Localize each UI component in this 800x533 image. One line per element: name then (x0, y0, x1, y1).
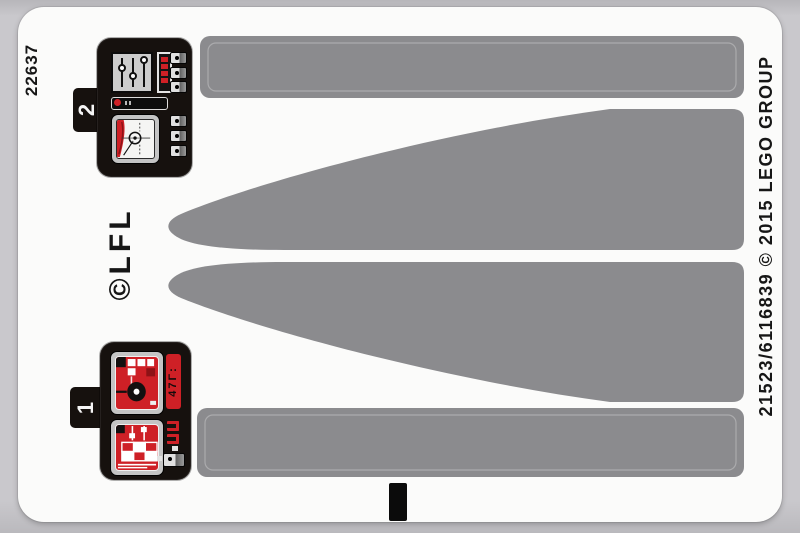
slider-knob (140, 56, 148, 64)
status-screen (115, 424, 159, 471)
sheet-part-number: 22637 (22, 33, 40, 107)
targeting-screen-graphics (116, 357, 158, 409)
sticker-1-tab: 1 (70, 387, 104, 428)
led-segment (161, 71, 168, 77)
led-segment (161, 78, 168, 84)
aurebesh-display: 47Γ: (166, 354, 181, 409)
white-square-mark (157, 456, 162, 461)
radar-screen-graphics (117, 120, 154, 158)
panel-button (170, 52, 187, 64)
slider-track (121, 58, 123, 87)
led-segment (161, 57, 168, 63)
slider-ball (114, 99, 121, 106)
panel-button (170, 81, 187, 93)
sticker-2-number: 2 (76, 98, 98, 122)
panel-button (163, 453, 185, 467)
panel-button (170, 130, 187, 142)
aurebesh-glyphs: 47Γ: (166, 354, 181, 409)
targeting-screen-frame (110, 351, 164, 415)
wedge-sticker-upper (168, 109, 744, 250)
horizontal-slider (111, 97, 168, 110)
wedge-sticker-lower (168, 262, 744, 402)
led-segment (161, 64, 168, 70)
panel-button (170, 67, 187, 79)
black-bar-sticker (389, 483, 407, 521)
strip-sticker-top (200, 36, 744, 98)
panel-button (170, 115, 187, 127)
panel-button (170, 145, 187, 157)
sticker-1-number: 1 (75, 396, 97, 420)
status-screen-graphics (116, 425, 158, 470)
slider-knob (118, 64, 126, 72)
red-bracket-symbol (167, 421, 179, 431)
white-square-mark (172, 446, 178, 451)
tick-mark (129, 101, 131, 105)
lfl-copyright: ©LFL (105, 192, 137, 316)
status-screen-frame (110, 419, 164, 476)
targeting-screen (115, 356, 159, 410)
radar-screen (116, 119, 155, 159)
control-panel-sticker-2 (97, 38, 192, 177)
control-panel-sticker-1: 47Γ: (100, 342, 191, 480)
edge-copyright-text: 21523/6116839 © 2015 LEGO GROUP (757, 24, 775, 448)
tick-mark (125, 101, 127, 105)
slider-bank (111, 52, 153, 93)
strip-sticker-bottom (197, 408, 744, 477)
photo-background: 22637 ©LFL 21523/6116839 © 2015 LEGO GRO… (0, 0, 800, 533)
slider-knob (129, 72, 137, 80)
radar-screen-frame (111, 114, 160, 164)
red-bracket-symbol (167, 434, 179, 444)
